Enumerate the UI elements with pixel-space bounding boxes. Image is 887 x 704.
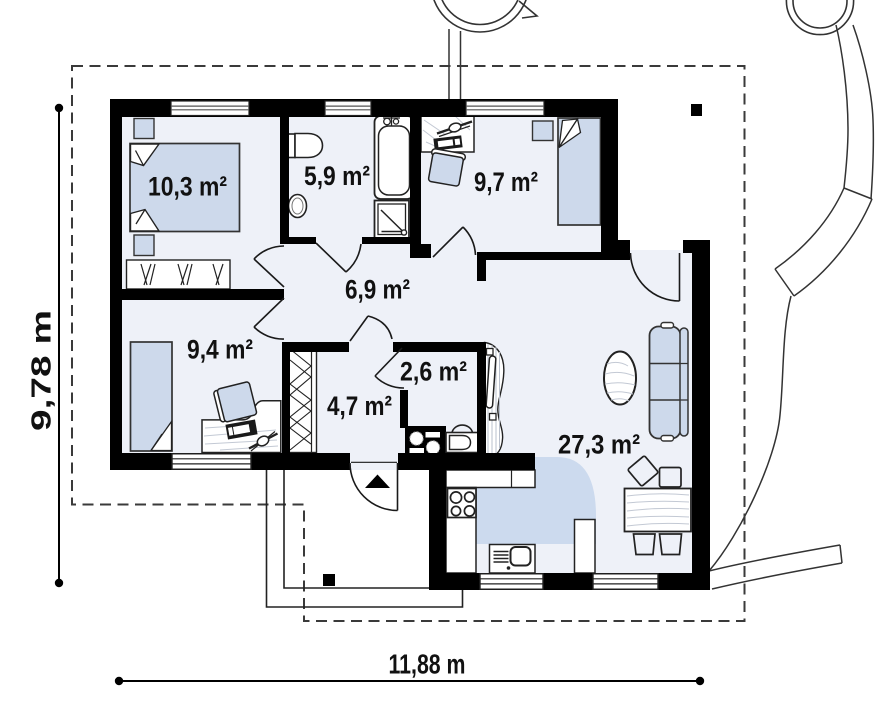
svg-text:10,3 m²: 10,3 m² [148, 172, 227, 202]
svg-text:4,7 m²: 4,7 m² [327, 391, 392, 421]
svg-text:9,78 m: 9,78 m [26, 310, 57, 431]
svg-text:9,4 m²: 9,4 m² [187, 335, 253, 365]
svg-text:2,6 m²: 2,6 m² [400, 357, 467, 387]
svg-text:11,88 m: 11,88 m [389, 649, 466, 680]
svg-text:27,3 m²: 27,3 m² [558, 430, 640, 460]
svg-text:6,9 m²: 6,9 m² [345, 275, 410, 305]
svg-text:5,9 m²: 5,9 m² [304, 161, 370, 191]
svg-text:9,7 m²: 9,7 m² [474, 167, 538, 197]
